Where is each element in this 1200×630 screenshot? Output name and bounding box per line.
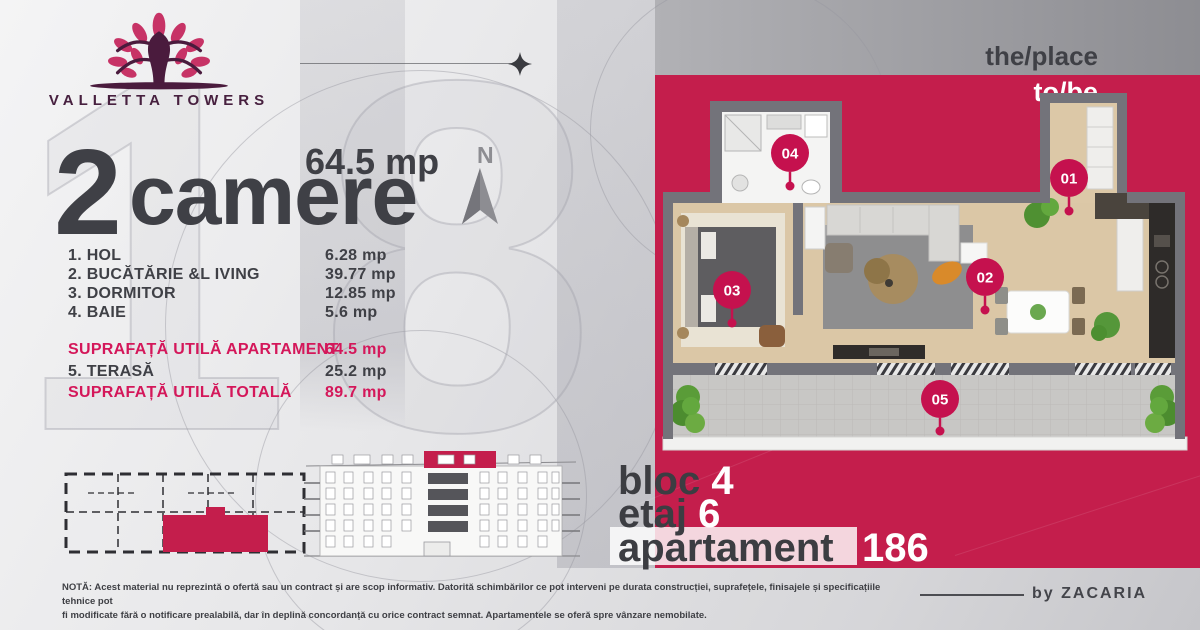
room-name: 1. HOL bbox=[68, 247, 121, 264]
disclaimer-line1: NOTĂ: Acest material nu reprezintă o ofe… bbox=[62, 582, 880, 607]
terrace bbox=[663, 373, 1187, 450]
room-name: 4. BAIE bbox=[68, 304, 126, 321]
floorplate-schematic bbox=[58, 460, 313, 568]
summary-row-terasa: 5. TERASĂ 25.2 mp bbox=[68, 363, 468, 382]
room-name: 3. DORMITOR bbox=[68, 285, 176, 302]
room-area: 39.77 mp bbox=[325, 266, 396, 284]
room-row: 2. BUCĂTĂRIE &L IVING 39.77 mp bbox=[68, 266, 468, 285]
apartment-floorplan: 01 02 03 04 bbox=[655, 75, 1200, 568]
diamond-star-icon bbox=[508, 52, 532, 76]
compass-north-label: N bbox=[477, 142, 494, 169]
summary-name: SUPRAFAȚĂ UTILĂ APARTAMENT bbox=[68, 341, 339, 358]
attribution-text: by ZACARIA bbox=[1032, 585, 1147, 603]
summary-area: 25.2 mp bbox=[325, 363, 387, 381]
highlighted-unit-elevation bbox=[424, 451, 496, 468]
disclaimer-line2: fi modificate fără o notificare prealabi… bbox=[62, 610, 707, 621]
room-row: 1. HOL 6.28 mp bbox=[68, 247, 468, 266]
bed-headboard bbox=[685, 227, 698, 327]
room-row: 3. DORMITOR 12.85 mp bbox=[68, 285, 468, 304]
summary-row-apartament: SUPRAFAȚĂ UTILĂ APARTAMENT 64.5 mp bbox=[68, 341, 468, 360]
summary-name: 5. TERASĂ bbox=[68, 363, 154, 380]
tagline-the-place: the/place bbox=[900, 41, 1098, 72]
room-name: 2. BUCĂTĂRIE &L IVING bbox=[68, 266, 260, 283]
summary-row-totala: SUPRAFAȚĂ UTILĂ TOTALĂ 89.7 mp bbox=[68, 384, 468, 403]
valletta-tree-logo-icon bbox=[74, 12, 244, 92]
title-area-value: 64.5 mp bbox=[305, 141, 439, 183]
room-area: 12.85 mp bbox=[325, 285, 396, 303]
poster-canvas: 18 VALLETTA TOWERS 2 camere 6 bbox=[0, 0, 1200, 630]
apartament-label: apartament bbox=[618, 528, 834, 568]
room-area: 5.6 mp bbox=[325, 304, 378, 322]
svg-text:03: 03 bbox=[724, 283, 741, 300]
svg-text:01: 01 bbox=[1061, 171, 1078, 188]
rooms-count: 2 bbox=[54, 131, 120, 253]
disclaimer-note: NOTĂ: Acest material nu reprezintă o ofe… bbox=[62, 581, 902, 623]
summary-area: 89.7 mp bbox=[325, 384, 387, 402]
summary-name: SUPRAFAȚĂ UTILĂ TOTALĂ bbox=[68, 384, 292, 401]
building-elevation bbox=[302, 436, 582, 570]
summary-area: 64.5 mp bbox=[325, 341, 387, 359]
north-arrow-icon bbox=[458, 168, 502, 228]
room-area: 6.28 mp bbox=[325, 247, 387, 265]
armchair bbox=[759, 325, 785, 347]
svg-text:04: 04 bbox=[782, 146, 799, 163]
decor-hairline bbox=[300, 63, 511, 64]
svg-text:05: 05 bbox=[932, 392, 949, 409]
kitchen-counter bbox=[1149, 203, 1175, 358]
room-row: 4. BAIE 5.6 mp bbox=[68, 304, 468, 323]
attribution-rule bbox=[920, 594, 1024, 596]
apartament-value: 186 bbox=[862, 528, 929, 568]
brand-name: VALLETTA TOWERS bbox=[46, 92, 272, 109]
svg-text:02: 02 bbox=[977, 270, 994, 287]
